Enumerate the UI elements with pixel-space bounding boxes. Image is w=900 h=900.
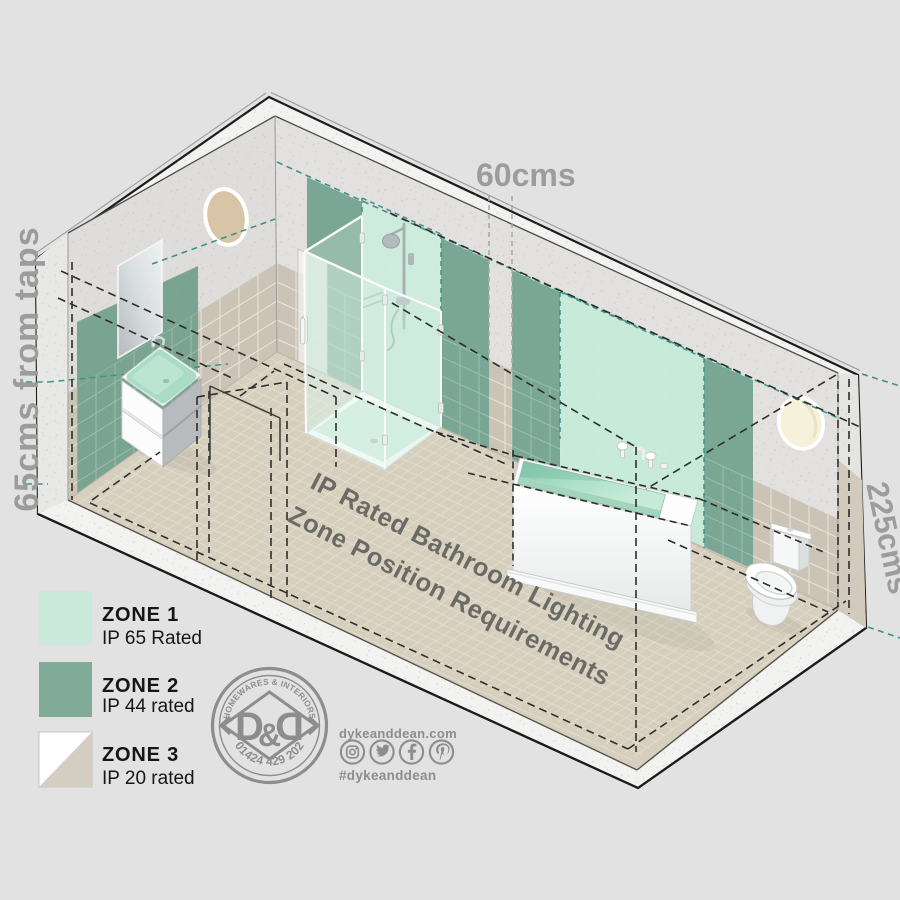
svg-text:ZONE 1: ZONE 1: [102, 604, 179, 626]
svg-text:ZONE 3: ZONE 3: [102, 744, 179, 766]
svg-text:#dykeanddean: #dykeanddean: [339, 768, 436, 783]
svg-text:60cms: 60cms: [476, 157, 576, 193]
svg-text:ZONE 2: ZONE 2: [102, 675, 179, 697]
svg-text:IP 65 Rated: IP 65 Rated: [102, 628, 202, 649]
svg-text:&: &: [258, 717, 281, 753]
svg-text:IP 44 rated: IP 44 rated: [102, 696, 195, 717]
svg-text:dykeanddean.com: dykeanddean.com: [339, 726, 457, 741]
svg-text:65cms from taps: 65cms from taps: [8, 226, 46, 511]
svg-text:IP 20 rated: IP 20 rated: [102, 768, 195, 789]
